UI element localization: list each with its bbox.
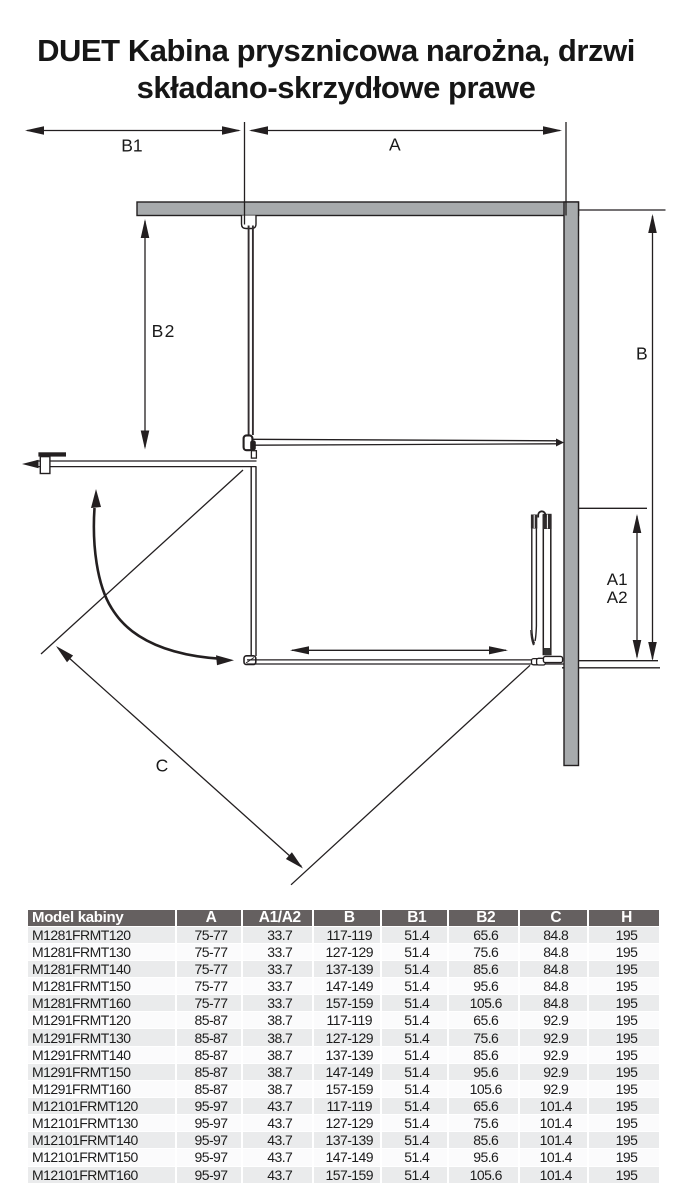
svg-text:B: B	[152, 321, 164, 341]
svg-text:B1: B1	[121, 135, 142, 155]
svg-text:A: A	[389, 134, 401, 154]
svg-text:A1: A1	[607, 570, 628, 589]
svg-text:2: 2	[165, 321, 175, 341]
svg-text:B: B	[636, 344, 648, 364]
svg-text:C: C	[156, 755, 169, 775]
svg-text:A2: A2	[607, 588, 628, 607]
